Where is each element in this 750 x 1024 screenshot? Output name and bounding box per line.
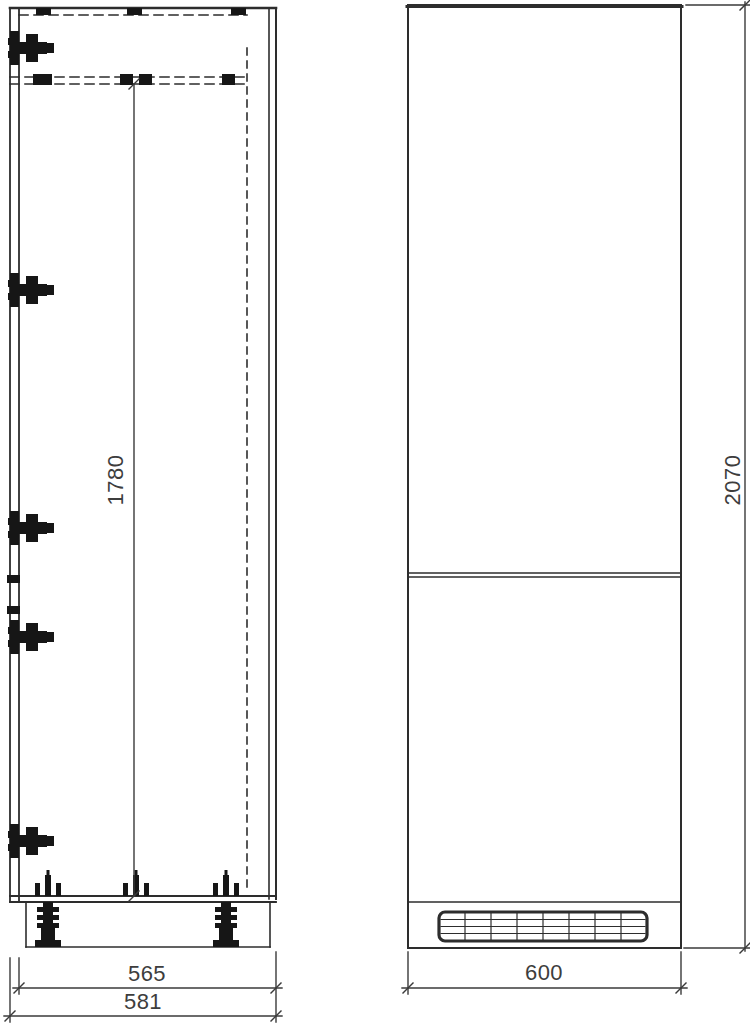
- ventilation-grille-icon: [439, 912, 647, 941]
- foot-fixing-screws-icon: [123, 870, 149, 896]
- front-view: [402, 0, 750, 994]
- cabinet-drawing: [0, 0, 750, 1024]
- cam-fitting-marks: [33, 8, 246, 85]
- carcass-side-panel: [10, 8, 276, 902]
- hinge-icon: [8, 31, 54, 65]
- dim-label-565: 565: [128, 963, 166, 985]
- door-gap-marks: [7, 575, 20, 614]
- hinge-icon: [8, 620, 54, 654]
- dimension-internal-height: [129, 79, 139, 901]
- hinge-icon: [8, 273, 54, 307]
- dim-label-581: 581: [124, 991, 162, 1013]
- door-panel-side: [10, 8, 19, 902]
- leveling-foot-icon: [213, 902, 239, 947]
- dim-label-1780: 1780: [105, 455, 127, 506]
- hinge-icon: [8, 824, 54, 858]
- hinge-icon: [8, 511, 54, 545]
- leveling-foot-icon: [35, 902, 61, 947]
- dim-label-600: 600: [525, 962, 563, 984]
- hidden-edge-lines: [10, 15, 250, 890]
- side-view: [4, 8, 282, 1022]
- dim-label-2070: 2070: [722, 455, 744, 506]
- carcass-front-outline: [407, 5, 682, 948]
- foot-fixing-screws-icon: [213, 870, 239, 896]
- foot-fixing-screws-icon: [35, 870, 61, 896]
- door-split-line: [408, 573, 681, 577]
- technical-drawing-canvas: 1780 2070 565 581 600: [0, 0, 750, 1024]
